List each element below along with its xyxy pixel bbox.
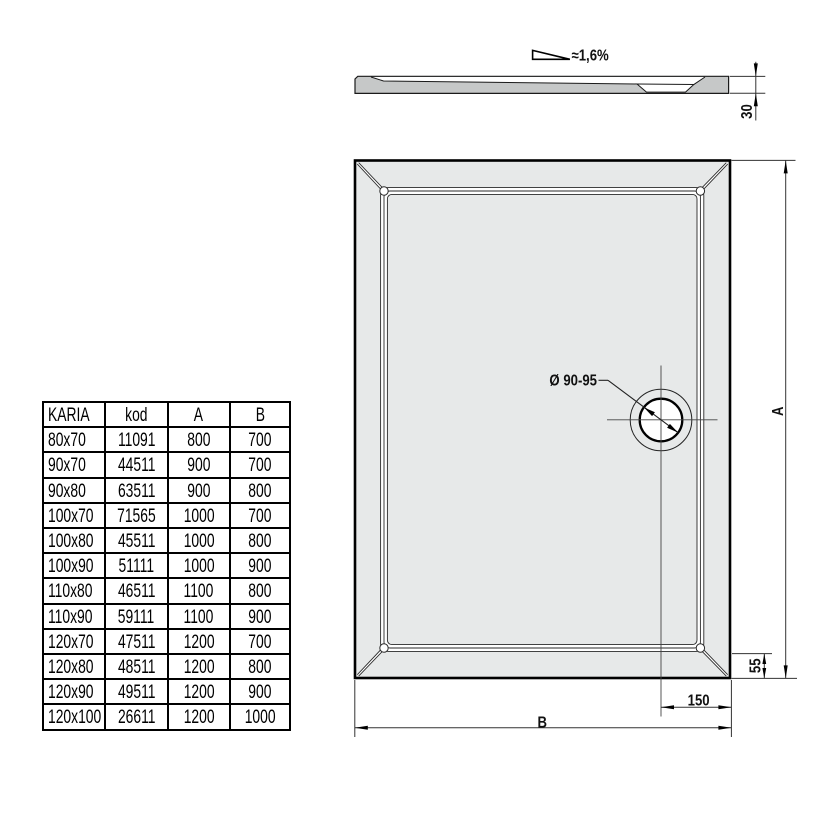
svg-text:150: 150 <box>688 693 710 710</box>
svg-text:A: A <box>770 407 787 417</box>
svg-text:B: B <box>538 715 548 732</box>
svg-text:55: 55 <box>748 658 765 673</box>
svg-text:Ø 90-95: Ø 90-95 <box>549 372 597 389</box>
svg-text:≈1,6%: ≈1,6% <box>572 47 609 64</box>
svg-text:30: 30 <box>739 104 756 119</box>
